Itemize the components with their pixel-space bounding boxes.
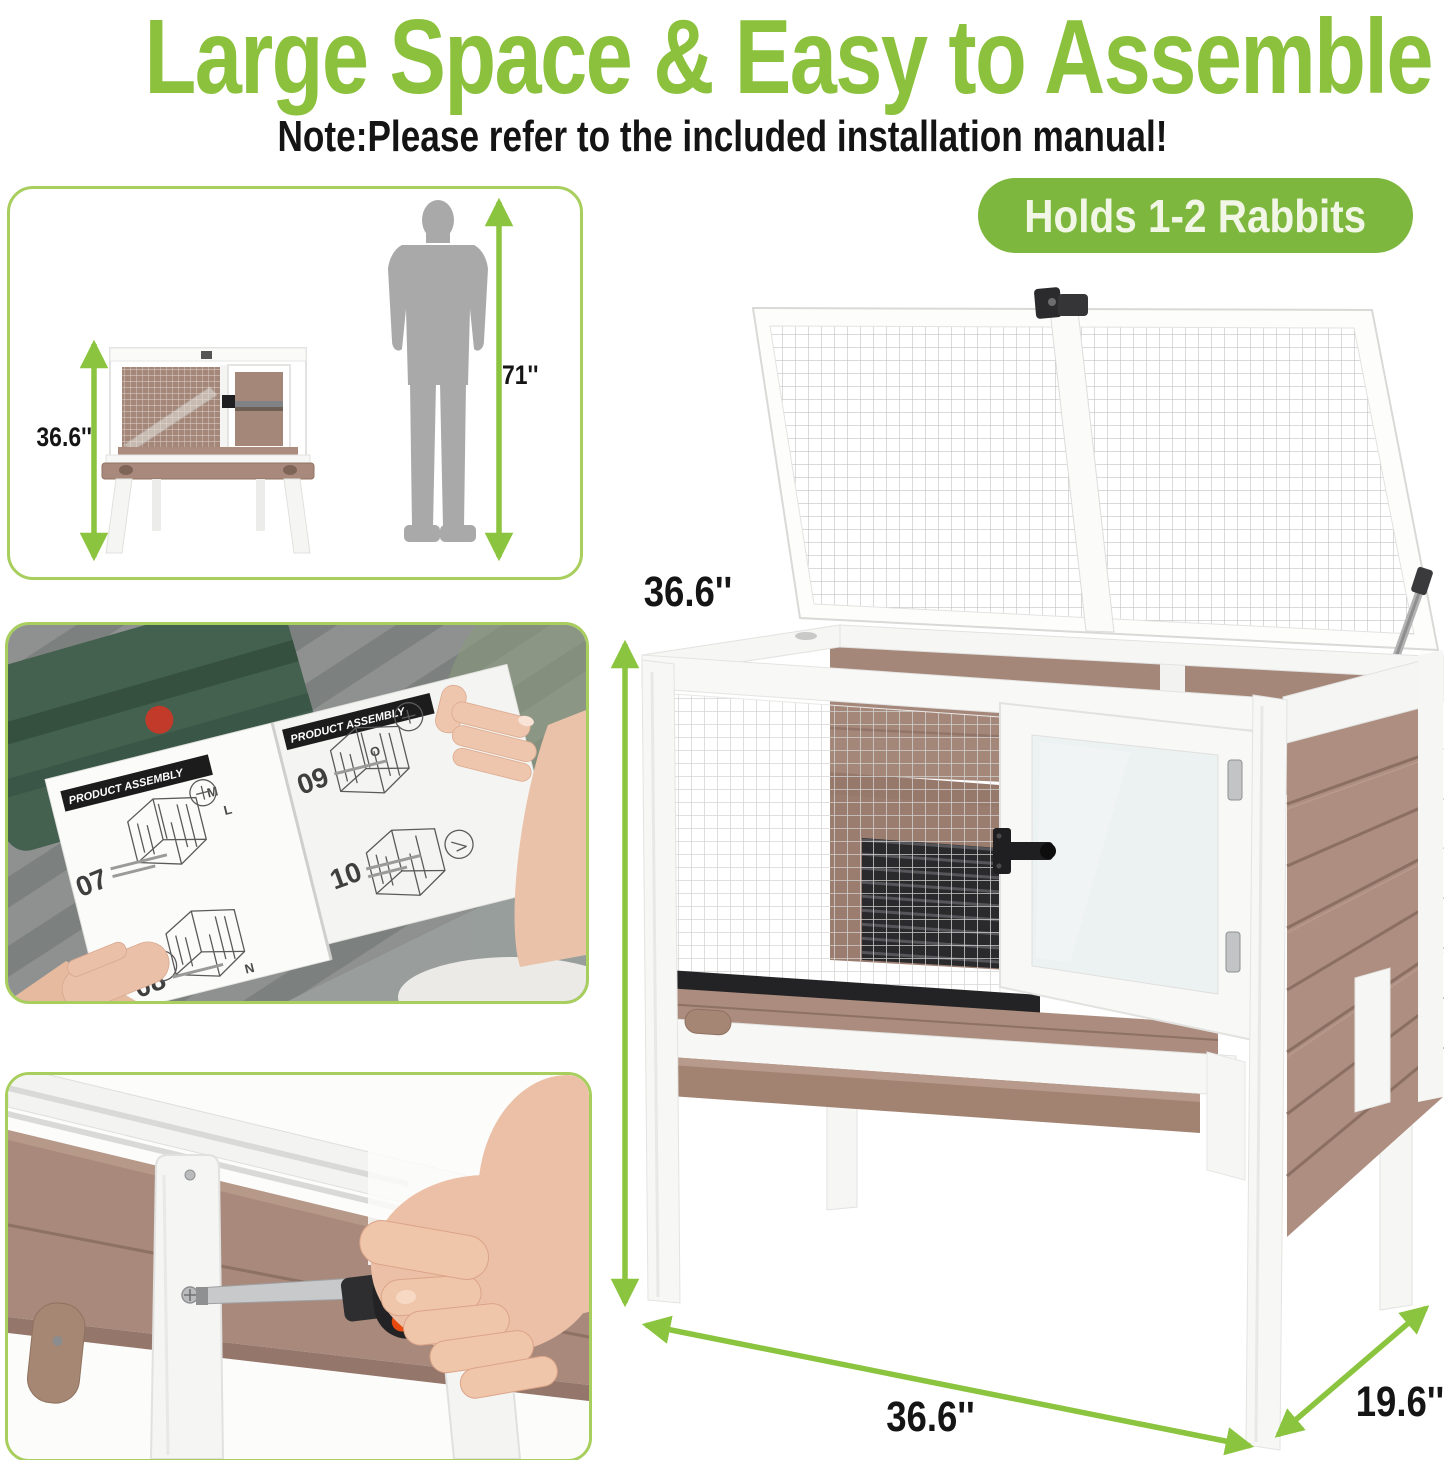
leg-bracket [1355,968,1390,1112]
manual-photo-illustration: PRODUCT ASSEMBLY PRODUCT ASSEMBLY 07 08 … [8,625,586,1001]
lid-latch-icon [1034,287,1088,319]
screw-icon [182,1287,198,1303]
screwdriver-photo-illustration [8,1075,589,1459]
front-door [993,703,1253,1040]
hutch-illustration [600,282,1445,1460]
hinge-icon [201,351,212,359]
front-left-leg [642,660,680,1303]
product-infographic: Large Space & Easy to Assemble Note:Plea… [0,0,1445,1460]
white-leg [151,1155,223,1459]
small-hutch-illustration [102,348,314,553]
front-right-leg [1246,695,1287,1450]
hutch-height-label: 36.6'' [19,422,92,453]
height-dimension-label: 36.6'' [637,568,739,617]
latch-icon [222,395,235,408]
note-text: Note:Please refer to the included instal… [145,112,1301,162]
leg-bracket [1207,1052,1245,1180]
person-silhouette [388,200,488,542]
installation-manual-photo: PRODUCT ASSEMBLY PRODUCT ASSEMBLY 07 08 … [5,622,589,1004]
depth-dimension-label: 19.6'' [1353,1378,1445,1427]
front-mesh-panel [674,694,1000,995]
side-panel [1283,650,1443,1237]
size-comparison-illustration [10,189,580,577]
page-title: Large Space & Easy to Assemble [145,4,1301,110]
back-left-leg [827,1094,857,1210]
brand-mark [795,632,817,640]
capacity-badge-label: Holds 1-2 Rabbits [1025,189,1367,243]
main-product-photo [600,282,1445,1460]
width-dimension-label: 36.6'' [860,1393,1000,1442]
size-comparison-panel [7,186,583,580]
capacity-badge: Holds 1-2 Rabbits [978,178,1413,253]
tray-knob-icon [684,1008,732,1035]
hinge-icon [1228,760,1242,800]
open-mesh-lid [753,287,1438,650]
person-height-label: 71'' [502,360,570,391]
assembly-screwdriver-photo [5,1072,592,1460]
hinge-icon [1226,932,1240,972]
